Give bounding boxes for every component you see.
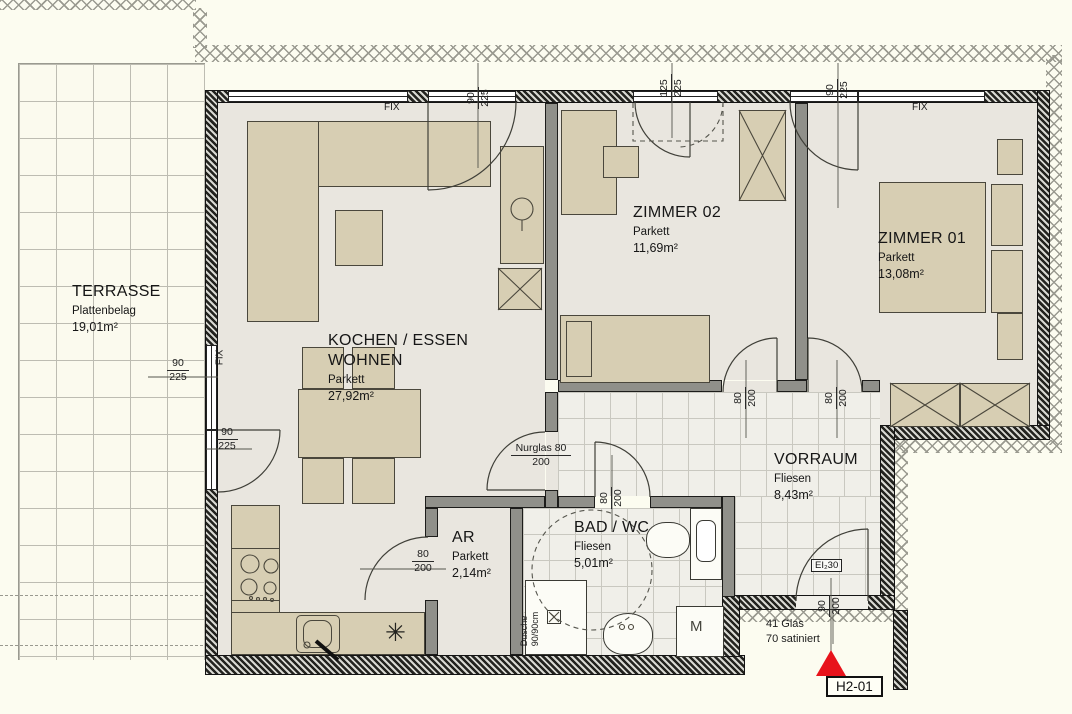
floor-plan: M ✳ — [0, 0, 1072, 714]
dim-entry-door: 90 200 — [816, 582, 844, 630]
room-surface: Parkett — [878, 251, 966, 265]
dim-ar-door: 80 200 — [402, 548, 444, 574]
insulation-band-vorraum-east — [895, 440, 908, 610]
wall-bad-east-lower — [722, 595, 740, 657]
eave-hatch-connector — [193, 8, 207, 48]
pillow — [991, 250, 1023, 313]
room-surface: Plattenbelag — [72, 304, 161, 318]
room-name: ZIMMER 02 — [633, 203, 721, 223]
kitchen-appliance-icon: ✳ — [385, 618, 406, 648]
desk-chair — [603, 146, 639, 178]
wall-zimmer01-vorraum-stub — [862, 380, 880, 392]
insulation-band-z01-south — [893, 440, 1062, 453]
room-label-bad: BAD / WC Fliesen 5,01m² — [574, 518, 649, 572]
room-label-zimmer01: ZIMMER 01 Parkett 13,08m² — [878, 229, 966, 283]
wall-stair-stub — [893, 610, 908, 690]
room-area: 13,08m² — [878, 267, 966, 283]
washing-machine-symbol: M — [690, 618, 703, 635]
wall-ar-north — [425, 496, 545, 508]
shower-drain — [547, 610, 561, 624]
dim-terrace-window: 90 225 — [150, 357, 206, 383]
room-surface: Parkett — [452, 550, 491, 564]
wall-bad-vorraum — [722, 496, 735, 597]
wall-zimmer01-south — [893, 425, 1050, 440]
wardrobe-zimmer01-left — [890, 383, 960, 427]
terrace-edge-dashed-2 — [0, 645, 218, 646]
room-name: ZIMMER 01 — [878, 229, 966, 249]
entry-fire-rating-label: EI₂30 — [811, 559, 842, 572]
room-label-zimmer02: ZIMMER 02 Parkett 11,69m² — [633, 203, 721, 257]
washbasin — [603, 613, 653, 655]
sofa-left-section — [247, 121, 319, 322]
wall-wohnen-vorraum-pier — [545, 490, 558, 508]
pillow — [566, 321, 592, 377]
stove — [231, 548, 280, 601]
wall-ar-west-lower — [425, 600, 438, 655]
wall-east — [1037, 90, 1050, 440]
pillow — [991, 184, 1023, 246]
toilet — [646, 522, 690, 558]
fix-label-wohnen: FIX — [384, 102, 400, 113]
wall-vorraum-east — [880, 425, 895, 610]
room-surface: Fliesen — [774, 472, 858, 486]
room-name: AR — [452, 528, 491, 548]
room-label-vorraum: VORRAUM Fliesen 8,43m² — [774, 450, 858, 504]
wall-wohnen-zimmer02 — [545, 103, 558, 380]
tv-board — [500, 146, 544, 264]
nightstand-bottom — [997, 313, 1023, 360]
room-label-wohnen: KOCHEN / ESSEN WOHNEN Parkett 27,92m² — [328, 331, 468, 405]
room-name: KOCHEN / ESSEN — [328, 331, 468, 351]
shower-note: Dusche 90/90cm — [519, 586, 542, 646]
entry-marker-triangle — [816, 650, 846, 676]
dim-wohnen-glass-door: 90 225 — [465, 74, 493, 122]
sink-basin — [303, 620, 332, 648]
dining-chair — [302, 458, 344, 504]
room-area: 8,43m² — [774, 488, 858, 504]
coffee-table — [335, 210, 383, 266]
dining-chair — [352, 458, 395, 504]
fix-label-terrace: FIX — [214, 350, 225, 366]
room-area: 5,01m² — [574, 556, 649, 572]
wall-bad-north-right — [650, 496, 722, 508]
room-area: 2,14m² — [452, 566, 491, 582]
wall-south — [205, 655, 745, 675]
nightstand-top — [997, 139, 1023, 175]
room-surface: Parkett — [633, 225, 721, 239]
vanity-sink — [696, 520, 716, 562]
dim-zimmer02-door: 80 200 — [732, 374, 760, 422]
wall-ar-west-upper — [425, 508, 438, 537]
floor-vorraum-lower — [735, 496, 880, 597]
window-zimmer01-fix — [858, 91, 985, 102]
window-wohnen-fix — [228, 91, 408, 102]
shelf-crossed — [498, 268, 542, 310]
dim-zimmer01-door: 80 200 — [823, 374, 851, 422]
wall-door-pier — [777, 380, 807, 392]
wall-zimmer02-zimmer01 — [795, 103, 808, 380]
room-name: VORRAUM — [774, 450, 858, 470]
room-area: 19,01m² — [72, 320, 161, 336]
wall-bad-north-left — [558, 496, 595, 508]
room-surface: Fliesen — [574, 540, 649, 554]
dim-zimmer02-window: 125 225 — [658, 64, 686, 112]
wardrobe-zimmer01-right — [960, 383, 1030, 427]
room-area: 27,92m² — [328, 389, 468, 405]
terrace-edge-dashed-1 — [0, 595, 218, 596]
dim-nurglas-door: Nurglas 80 200 — [497, 442, 585, 468]
room-label-ar: AR Parkett 2,14m² — [452, 528, 491, 582]
eave-hatch-top-left — [0, 0, 196, 10]
insulation-band-top — [195, 45, 1062, 62]
dim-terrace-door: 90 225 — [204, 426, 250, 452]
glass-note: 41 Glas 70 satiniert — [766, 617, 820, 647]
unit-tag: H2-01 — [826, 676, 883, 697]
wall-wohnen-vorraum-upper — [545, 392, 558, 432]
room-name-line2: WOHNEN — [328, 351, 468, 371]
dim-bad-door: 80 200 — [598, 474, 626, 522]
room-area: 11,69m² — [633, 241, 721, 257]
room-label-terrasse: TERRASSE Plattenbelag 19,01m² — [72, 282, 161, 336]
fix-label-zimmer01: FIX — [912, 102, 928, 113]
wardrobe-zimmer02 — [739, 110, 786, 201]
room-name: TERRASSE — [72, 282, 161, 302]
room-surface: Parkett — [328, 373, 468, 387]
dim-zimmer01-glass-door: 90 225 — [824, 66, 852, 114]
